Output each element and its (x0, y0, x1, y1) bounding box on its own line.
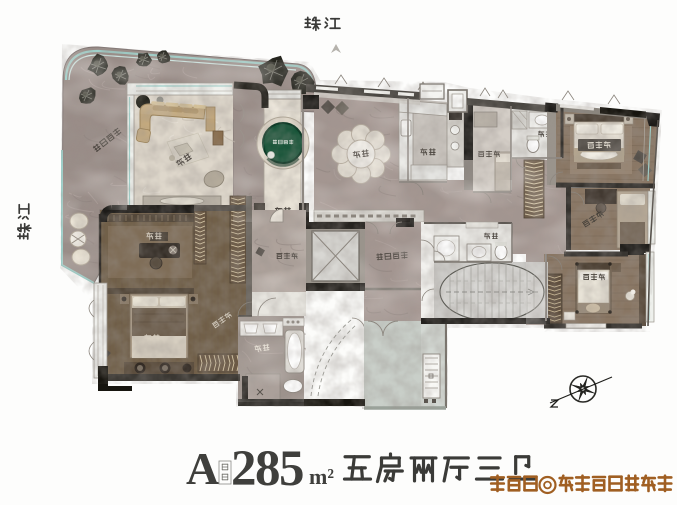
svg-text:A: A (186, 443, 219, 494)
svg-text:m²: m² (309, 464, 334, 489)
svg-text:285: 285 (231, 441, 303, 497)
